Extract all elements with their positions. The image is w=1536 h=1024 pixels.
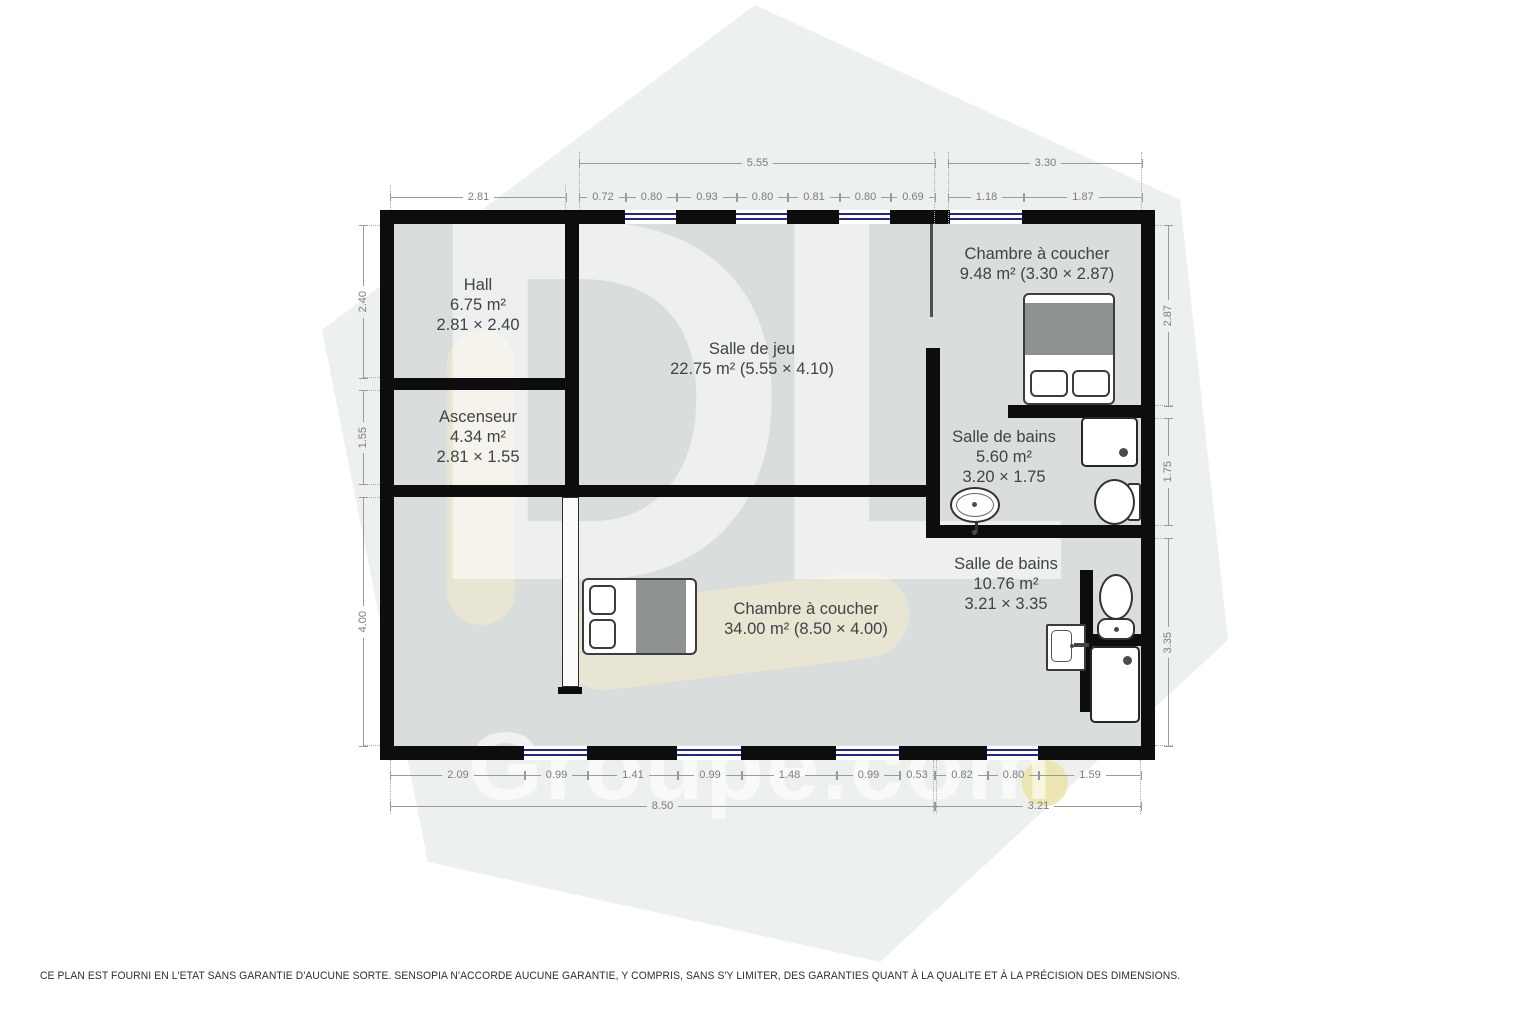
dimension-1.48: 1.48 <box>741 771 838 780</box>
window <box>987 746 1038 760</box>
room-label-salle-de-bains-nord: Salle de bains 5.60 m² 3.20 × 1.75 <box>952 427 1056 487</box>
window <box>677 746 741 760</box>
dimension-0.99: 0.99 <box>677 771 743 780</box>
dimension-8.50: 8.50 <box>390 802 935 811</box>
dimension-0.80: 0.80 <box>839 193 892 202</box>
dimension-0.72: 0.72 <box>579 193 627 202</box>
dimension-0.53: 0.53 <box>899 771 935 780</box>
dimension-0.93: 0.93 <box>676 193 738 202</box>
dimension-3.30: 3.30 <box>948 159 1143 168</box>
dimension-0.69: 0.69 <box>890 193 936 202</box>
dimension-2.09: 2.09 <box>390 771 526 780</box>
sink-cabinet-icon <box>1046 624 1086 671</box>
window <box>836 746 899 760</box>
room-label-salle-de-bains-sud: Salle de bains 10.76 m² 3.21 × 3.35 <box>954 554 1058 614</box>
disclaimer-text: CE PLAN EST FOURNI EN L'ETAT SANS GARANT… <box>40 970 1180 982</box>
dimension-3.21: 3.21 <box>935 802 1142 811</box>
sink-icon <box>950 487 1000 523</box>
dimension-0.80: 0.80 <box>736 193 789 202</box>
window <box>950 210 1022 224</box>
dimension-1.41: 1.41 <box>587 771 679 780</box>
room-label-chambre-sud: Chambre à coucher 34.00 m² (8.50 × 4.00) <box>724 599 888 639</box>
window <box>625 210 676 224</box>
dimension-1.55: 1.55 <box>359 390 368 485</box>
toilet-icon <box>1094 479 1141 525</box>
dimension-4.00: 4.00 <box>359 497 368 747</box>
dimension-1.59: 1.59 <box>1038 771 1142 780</box>
double-bed-icon <box>1023 293 1115 405</box>
room-label-salle-de-jeu: Salle de jeu 22.75 m² (5.55 × 4.10) <box>670 339 834 379</box>
dimension-2.87: 2.87 <box>1164 225 1173 407</box>
dimension-2.40: 2.40 <box>359 225 368 379</box>
dimension-5.55: 5.55 <box>579 159 936 168</box>
dimension-0.80: 0.80 <box>625 193 678 202</box>
double-bed-icon <box>582 578 697 655</box>
wall-partition-chambre-nord <box>930 224 933 317</box>
wall-bath-west <box>926 348 940 538</box>
dimension-2.81: 2.81 <box>390 193 567 202</box>
wall-bains-divider <box>926 525 1141 538</box>
window <box>524 746 587 760</box>
partition-chambre-sud <box>562 497 579 687</box>
dimension-0.82: 0.82 <box>935 771 989 780</box>
dimension-1.75: 1.75 <box>1164 418 1173 526</box>
dimension-0.81: 0.81 <box>787 193 841 202</box>
dimension-1.18: 1.18 <box>948 193 1025 202</box>
wall-outer-right <box>1141 210 1155 760</box>
wall-hall-east <box>565 210 579 498</box>
dimension-1.87: 1.87 <box>1023 193 1143 202</box>
wall-hall-ascenseur <box>380 378 579 390</box>
window <box>839 210 890 224</box>
dimension-0.99: 0.99 <box>836 771 901 780</box>
dimension-0.99: 0.99 <box>524 771 589 780</box>
toilet-icon <box>1097 574 1135 640</box>
room-label-hall: Hall 6.75 m² 2.81 × 2.40 <box>436 275 519 335</box>
floorplan-canvas: DL Groupe.com <box>0 0 1536 1024</box>
wall-main-divider <box>380 485 940 497</box>
room-label-ascenseur: Ascenseur 4.34 m² 2.81 × 1.55 <box>436 407 519 467</box>
partition-cap <box>558 687 582 694</box>
shower-icon <box>1081 417 1138 467</box>
dimension-0.80: 0.80 <box>987 771 1040 780</box>
shower-icon <box>1090 646 1140 723</box>
window <box>736 210 787 224</box>
wall-outer-bottom <box>380 746 1155 760</box>
dimension-3.35: 3.35 <box>1164 538 1173 747</box>
room-label-chambre-nord: Chambre à coucher 9.48 m² (3.30 × 2.87) <box>960 244 1115 284</box>
